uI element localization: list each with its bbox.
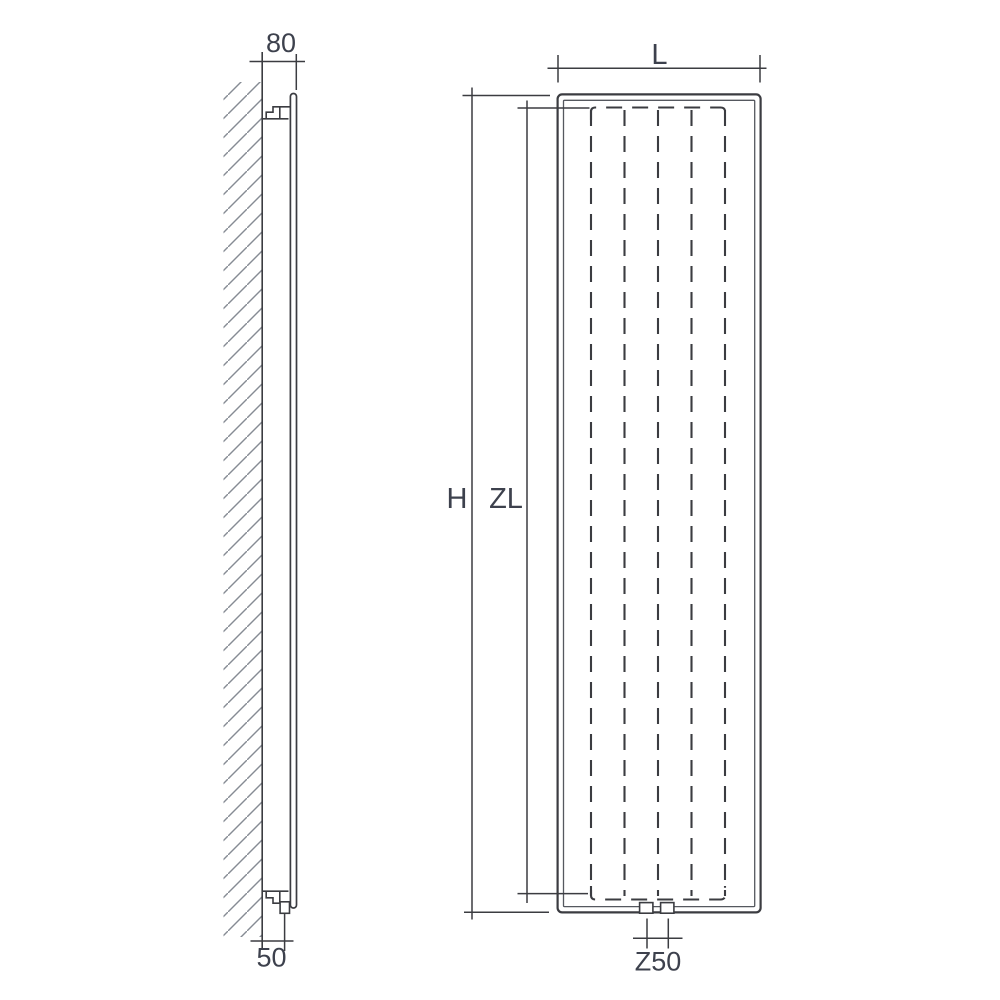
dim-ZL-label: ZL (489, 483, 523, 515)
side-view: 80 50 (224, 28, 306, 973)
dim-H-label: H (447, 483, 468, 515)
dim-Z50-label: Z50 (635, 947, 682, 977)
dim-L-label: L (651, 39, 667, 71)
dim-80-label: 80 (266, 28, 296, 58)
connection-port-left (640, 903, 653, 914)
dim-50-label: 50 (256, 943, 286, 973)
radiator-outer-frame (558, 94, 761, 912)
dimension-80: 80 (250, 28, 306, 90)
radiator-side-panel (290, 94, 296, 909)
front-view: L H ZL Z50 (447, 39, 767, 977)
bottom-wall-bracket (262, 891, 290, 913)
dimension-L: L (548, 39, 767, 83)
dimension-Z50: Z50 (633, 919, 683, 977)
wall-hatch-area (224, 82, 263, 937)
bottom-connection-valve (280, 902, 289, 914)
top-wall-bracket (262, 107, 290, 119)
radiator-dimension-drawing: 80 50 L (0, 0, 1000, 1000)
connection-port-right (661, 903, 674, 914)
